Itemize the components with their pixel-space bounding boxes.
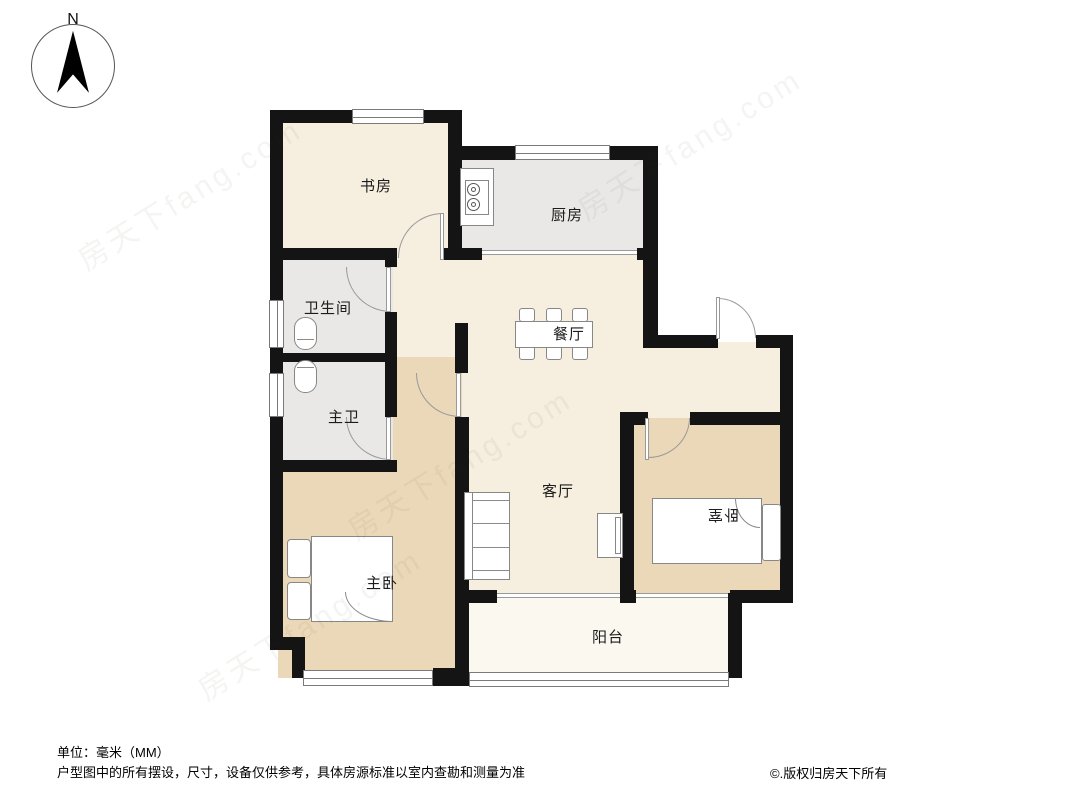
- door-leaf-study: [440, 213, 444, 260]
- unit-note: 单位：毫米（MM）: [57, 742, 170, 761]
- toilet-icon: [294, 317, 317, 350]
- wall: [728, 593, 742, 678]
- watermark: 房天下fang.com: [568, 55, 810, 229]
- balcony-opening-line-east: [636, 593, 728, 598]
- window-bathroom-left: [269, 300, 284, 348]
- window-study-top: [352, 109, 424, 124]
- dining-chair-icon: [572, 346, 588, 360]
- wall: [637, 248, 658, 260]
- wall: [270, 353, 397, 362]
- wall: [730, 590, 793, 603]
- toilet-icon: [294, 360, 317, 393]
- tv-screen-icon: [615, 517, 621, 554]
- door-leaf-bedroom: [645, 418, 649, 460]
- pillow-icon: [762, 504, 781, 561]
- window-kitchen-top: [515, 145, 610, 160]
- copyright-text: ©.版权归房天下所有: [770, 763, 887, 782]
- wall: [620, 412, 648, 425]
- sofa-cushion-line: [473, 570, 509, 571]
- dining-chair-icon: [546, 346, 562, 360]
- stove-burner-icon: [467, 183, 480, 196]
- dining-chair-icon: [546, 308, 562, 322]
- door-arc-entrance: [718, 298, 756, 338]
- floor-plan: 餐厅 书房 厨房 卫生间 主卫 客厅 主卧 卧室 阳台 房天下fang.com …: [0, 0, 1066, 800]
- label-dining: 餐厅: [544, 326, 594, 344]
- disclaimer-text: 户型图中的所有摆设，尺寸，设备仅供参考，具体房源标准以室内查勘和测量为准: [57, 762, 525, 781]
- balcony-opening-line-west: [497, 593, 620, 598]
- wall: [455, 323, 468, 373]
- toilet-seat-line: [297, 367, 314, 368]
- wall: [643, 335, 718, 348]
- wall: [385, 248, 397, 267]
- door-leaf-entrance: [716, 297, 720, 339]
- label-living: 客厅: [533, 483, 583, 501]
- label-study: 书房: [351, 178, 401, 196]
- wall: [270, 260, 283, 302]
- label-master-bath: 主卫: [320, 409, 368, 427]
- door-leaf-master-bath: [386, 417, 391, 460]
- wall: [270, 248, 397, 260]
- wall: [455, 590, 497, 603]
- door-leaf-bathroom: [386, 267, 391, 312]
- label-bedroom: 卧室: [697, 505, 749, 523]
- wall: [620, 412, 634, 603]
- compass-north-label: N: [60, 11, 86, 29]
- toilet-seat-line: [297, 339, 314, 340]
- dining-chair-icon: [519, 346, 535, 360]
- window-balcony-bottom: [469, 672, 729, 687]
- sofa-cushion-line: [473, 523, 509, 524]
- pillow-icon: [287, 539, 311, 578]
- sofa-icon: [472, 492, 510, 580]
- wall: [270, 460, 397, 472]
- kitchen-pass-line: [482, 250, 637, 255]
- wall: [780, 335, 793, 603]
- label-balcony: 阳台: [583, 629, 633, 647]
- door-leaf-corridor: [456, 373, 461, 417]
- window-master-bedroom-bottom: [303, 670, 433, 686]
- sofa-cushion-line: [473, 547, 509, 548]
- room-fill-entry-hall: [650, 342, 786, 418]
- sofa-cushion-line: [473, 500, 509, 501]
- north-arrow-icon: [31, 24, 115, 108]
- wall: [385, 312, 397, 417]
- window-master-bath-left: [269, 373, 284, 417]
- wall: [690, 412, 783, 425]
- dining-chair-icon: [519, 308, 535, 322]
- dining-chair-icon: [572, 308, 588, 322]
- stove-burner-icon: [467, 198, 480, 211]
- label-bathroom: 卫生间: [299, 300, 357, 318]
- wall: [443, 248, 482, 260]
